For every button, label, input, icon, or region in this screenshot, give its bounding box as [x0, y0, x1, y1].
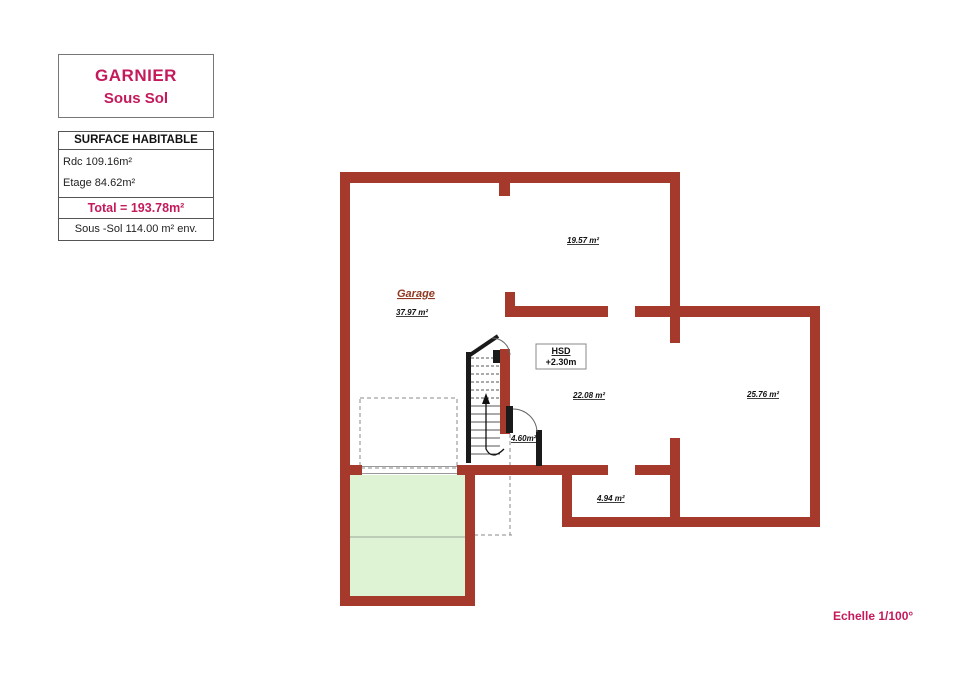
wall-rightroom-right: [810, 306, 820, 527]
wall-terrace-right: [465, 465, 475, 606]
stair-treads-upper: [471, 358, 500, 398]
stair-wall-left: [466, 352, 471, 463]
wall-top-stub: [499, 183, 510, 196]
wall-bottom-c: [635, 465, 680, 475]
area-label-hall: 4.94 m²: [596, 494, 625, 503]
wall-interior-h2: [635, 306, 820, 317]
area-label-room-top: 19.57 m²: [567, 236, 599, 245]
hsd-box: HSD +2.30m: [536, 344, 586, 369]
door-arc-bottom: [513, 409, 537, 432]
terrace-area: [350, 475, 465, 596]
wall-bottom-b: [457, 465, 608, 475]
wall-hall-left: [562, 465, 572, 527]
area-label-garage: 37.97 m²: [396, 308, 428, 317]
wall-left: [340, 172, 350, 606]
floor-plan-page: GARNIER Sous Sol SURFACE HABITABLE Rdc 1…: [0, 0, 960, 678]
wall-right-mid: [670, 438, 680, 527]
wall-bottom-a: [340, 465, 362, 475]
hsd-label: HSD: [551, 346, 571, 356]
wall-top: [340, 172, 680, 183]
door-jamb-top: [493, 350, 500, 363]
door-jamb-bottom: [506, 406, 513, 433]
parking-dashed-rect: [360, 398, 457, 468]
area-label-room-right: 25.76 m²: [746, 390, 779, 399]
hsd-height: +2.30m: [546, 357, 577, 367]
wall-terrace-bottom: [340, 596, 475, 606]
wall-right-upper: [670, 172, 680, 343]
area-label-stairwell: 4.60m²: [510, 434, 537, 443]
wall-bottom-right: [562, 517, 820, 527]
scale-note: Echelle 1/100°: [833, 609, 913, 623]
wall-black-segment: [536, 430, 542, 466]
garage-room-label: Garage: [397, 288, 435, 300]
floor-plan-drawing: HSD +2.30m Garage 37.97 m² 19.57 m² 22.0…: [0, 0, 960, 678]
wall-interior-h1: [505, 306, 608, 317]
area-label-room-center: 22.08 m²: [572, 391, 605, 400]
